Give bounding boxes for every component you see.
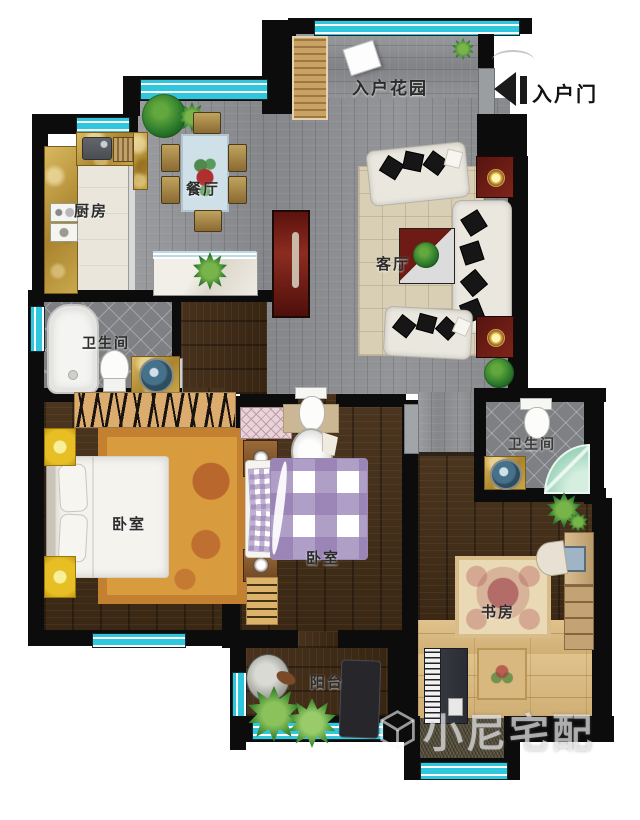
bedroom-second-door-leaf [404,404,419,454]
corridor-floor [418,392,476,456]
toilet-second-bowl [299,396,325,431]
bed-second-duvet-checkered [270,458,368,560]
hallway-floor [175,302,267,394]
entry-door-label: 入户门 [532,78,598,107]
wall-bedroom-second-top-b [336,394,406,407]
study-desk-drawers [564,584,594,650]
wall-dining-left-pillar [123,76,140,116]
entry-arrow-icon [494,72,516,106]
red-cabinet-handle [292,232,299,288]
watermark-text: 小尼宅配 [423,701,595,759]
bed-master-fold-line [92,457,94,577]
entry-shoe-cabinet [292,36,328,120]
sofa-pillow [460,209,488,237]
balcony-side-window [232,672,247,720]
bed-master-pillow-1 [58,463,88,512]
sofa-bottom [383,306,473,361]
kitchen-cutting-board [113,137,134,162]
sofa-pillow [402,151,424,173]
coffee-table-plant [413,242,439,268]
sofa-chaise-top [365,141,470,207]
sofa-pillow [392,314,417,338]
dining-chair-bottom [194,210,222,232]
kitchen-counter-strip [133,132,148,190]
sofa-pillow-white [452,316,472,337]
wall-entry-right-upper [478,34,494,68]
label-bathroom-right: 卫生间 [508,434,556,454]
wall-study-right [592,498,612,738]
duvet-fold [269,461,289,555]
nightstand-lamp [253,557,269,573]
dining-chair-top [193,112,221,134]
sofa-pillow [416,313,438,334]
label-bedroom-second: 卧室 [306,547,340,568]
console-table-edge [153,251,256,259]
dining-chair-left-2 [161,176,180,204]
side-table-bottom [476,316,514,358]
red-display-cabinet [272,210,310,318]
label-study: 书房 [481,601,515,622]
label-living: 客厅 [376,253,410,274]
sofa-pillow [459,240,484,265]
watermark: 小尼宅配 [380,698,595,762]
cube-wireframe-icon [380,705,415,755]
toilet-left-tank [103,378,126,392]
entry-door-leaf [478,68,495,118]
floorplan-canvas: 入户门 [0,0,640,820]
label-kitchen: 厨房 [74,200,108,221]
sink-right-basin [490,459,522,490]
ladder-rug [246,577,278,625]
kitchen-sink [82,137,112,160]
study-rug [455,556,551,638]
bathtub-drain [68,370,78,380]
table-lamp [487,169,505,187]
wall-entry-right-lower [477,114,527,160]
label-entry-garden: 入户花园 [352,74,428,99]
sofa-pillow [460,269,488,297]
wall-bedroom-master-left [28,388,44,646]
nightstand-lamp-top [44,428,76,466]
label-dining: 餐厅 [186,178,220,199]
sink-left-basin [139,358,174,393]
kitchen-cooktop-2 [50,223,78,242]
balcony-mat [339,659,382,738]
sofa-pillow [379,155,405,180]
bathroom-left-window [30,306,45,352]
label-balcony: 阳台 [310,671,344,692]
dining-plant-large [142,94,186,138]
dining-chair-left-1 [161,144,180,172]
tatami-table [477,648,527,700]
alcove-window [420,762,508,780]
entry-door-swing-arc [492,50,534,70]
dining-chair-right-2 [228,176,247,204]
bedroom-master-window [92,633,186,648]
sofa-pillow-white [444,149,464,169]
zebra-rug [74,392,236,428]
table-lamp [487,329,505,347]
balcony-door-gap [298,632,338,648]
dining-chair-right-1 [228,144,247,172]
dining-table [181,134,229,212]
wall-bedroom-second-bottom-a [240,630,298,648]
side-table-top [476,156,514,198]
entry-arrow-bar [520,76,527,104]
label-bathroom-left: 卫生间 [82,333,130,353]
wall-bath-hall-divider [172,302,181,358]
living-plant [484,358,514,388]
label-bedroom-master: 卧室 [112,513,146,534]
nightstand-lamp-bottom [44,556,76,598]
